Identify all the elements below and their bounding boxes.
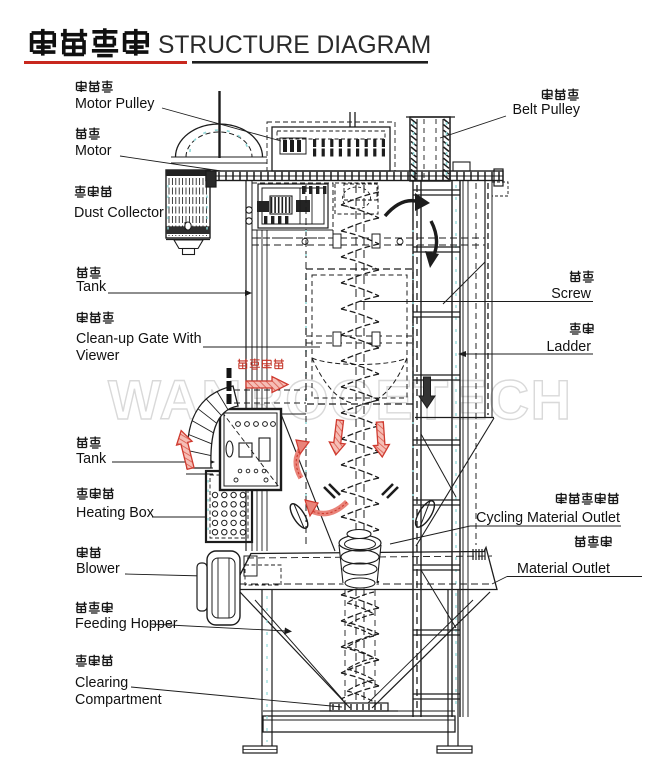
svg-text:Blower: Blower: [76, 561, 120, 577]
svg-text:Motor: Motor: [75, 143, 112, 159]
svg-text:Dust Collector: Dust Collector: [74, 205, 164, 221]
svg-text:Compartment: Compartment: [75, 692, 162, 708]
svg-text:Clean-up Gate With: Clean-up Gate With: [76, 331, 202, 347]
svg-text:Material Outlet: Material Outlet: [517, 561, 610, 577]
svg-text:Motor Pulley: Motor Pulley: [75, 96, 155, 112]
svg-text:Cycling Material Outlet: Cycling Material Outlet: [476, 510, 620, 526]
svg-text:Feeding Hopper: Feeding Hopper: [75, 616, 178, 632]
svg-text:Screw: Screw: [551, 286, 591, 302]
svg-text:Ladder: Ladder: [546, 339, 591, 355]
svg-text:Heating Box: Heating Box: [76, 505, 154, 521]
svg-text:Belt Pulley: Belt Pulley: [512, 102, 580, 118]
svg-text:Clearing: Clearing: [75, 675, 128, 691]
svg-text:Tank: Tank: [76, 279, 107, 295]
svg-text:Viewer: Viewer: [76, 348, 120, 364]
svg-text:STRUCTURE DIAGRAM: STRUCTURE DIAGRAM: [158, 32, 431, 59]
svg-text:Tank: Tank: [76, 451, 107, 467]
